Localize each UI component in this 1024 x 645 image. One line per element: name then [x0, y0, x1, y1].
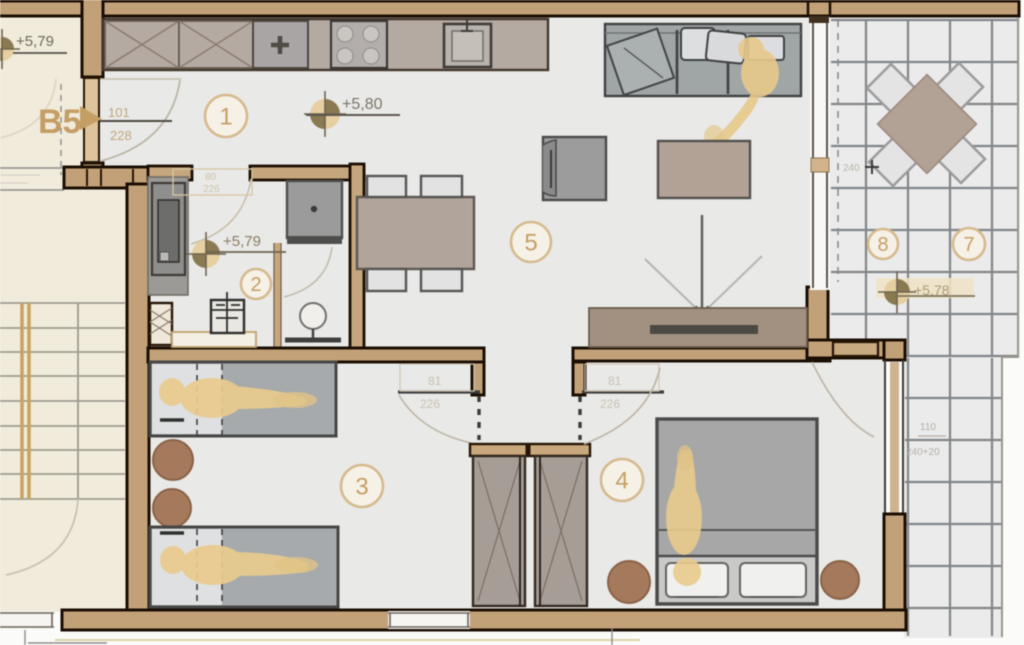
svg-text:8: 8 — [877, 234, 888, 256]
svg-text:81: 81 — [608, 374, 622, 388]
svg-text:2: 2 — [250, 274, 261, 296]
svg-text:+5,80: +5,80 — [342, 96, 383, 113]
svg-text:+5,79: +5,79 — [223, 233, 261, 250]
svg-text:226: 226 — [203, 184, 220, 195]
svg-text:101: 101 — [108, 105, 130, 120]
svg-text:5: 5 — [524, 230, 537, 257]
svg-text:3: 3 — [355, 474, 368, 501]
svg-text:226: 226 — [420, 397, 440, 411]
svg-text:80: 80 — [205, 172, 217, 183]
svg-text:228: 228 — [110, 128, 132, 143]
svg-text:226: 226 — [600, 397, 620, 411]
svg-text:+5,79: +5,79 — [16, 33, 54, 50]
svg-text:110: 110 — [920, 422, 936, 433]
svg-text:240+20: 240+20 — [906, 447, 940, 458]
svg-text:240: 240 — [843, 163, 860, 174]
svg-text:81: 81 — [428, 374, 442, 388]
svg-text:7: 7 — [963, 234, 974, 256]
svg-text:1: 1 — [219, 104, 232, 131]
svg-text:B5: B5 — [38, 103, 81, 141]
svg-text:4: 4 — [615, 468, 628, 495]
